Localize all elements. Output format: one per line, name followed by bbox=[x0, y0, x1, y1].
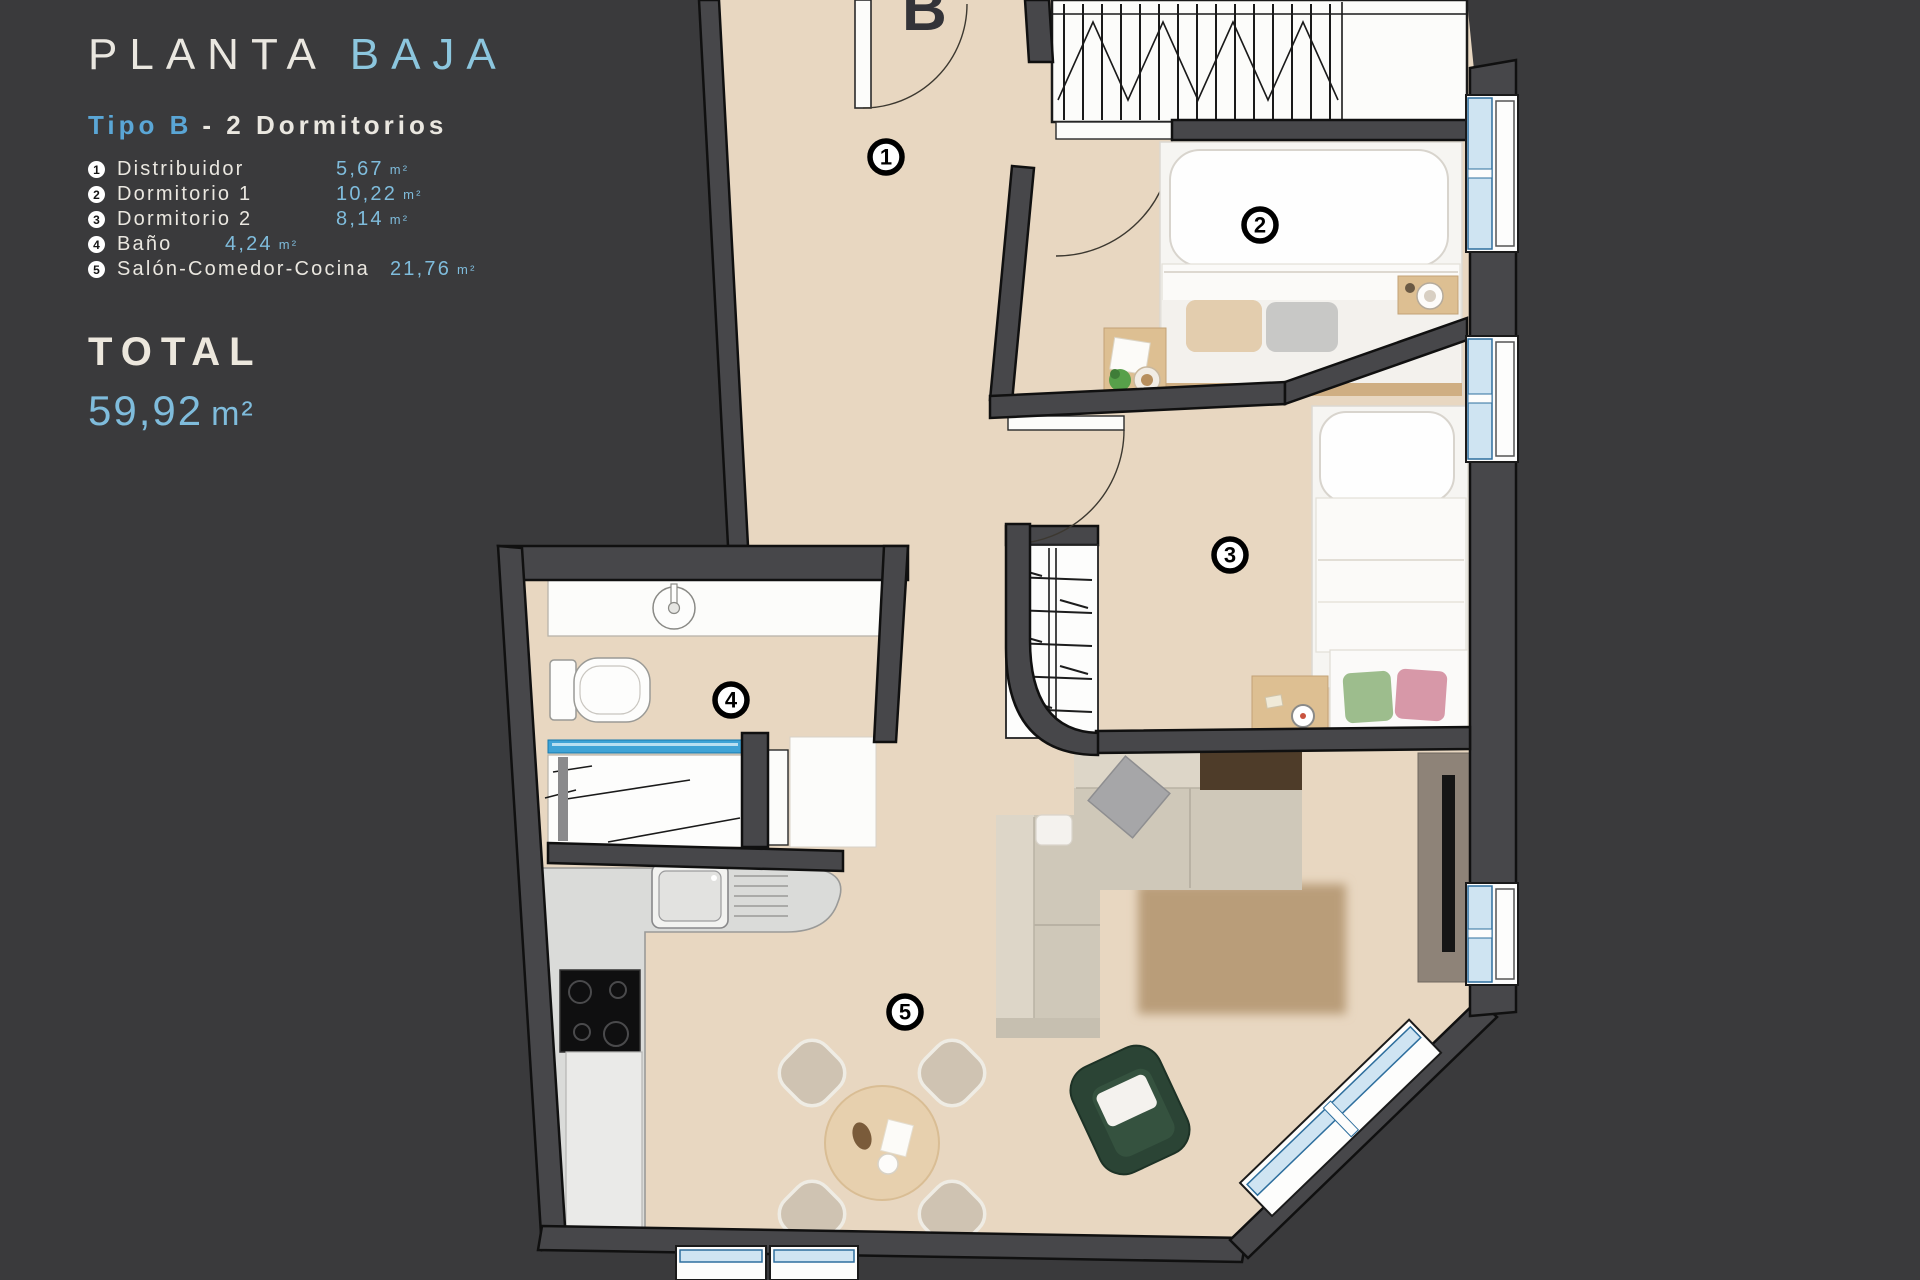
subtitle-rest: - 2 Dormitorios bbox=[202, 110, 447, 140]
plan-room-badge: 2 bbox=[1244, 209, 1276, 241]
cooktop-icon bbox=[560, 970, 640, 1052]
room-area-value: 21,76 bbox=[390, 258, 451, 281]
room-number-badge: 3 bbox=[88, 211, 105, 228]
table-cup-icon bbox=[878, 1154, 898, 1174]
room-legend-row: 5Salón-Comedor-Cocina21,76m² bbox=[88, 257, 648, 282]
wall-dormitorio-1-top bbox=[1172, 120, 1467, 140]
room-number-badge: 1 bbox=[88, 161, 105, 178]
wall-stairs-left bbox=[1025, 0, 1053, 62]
title-accent: BAJA bbox=[350, 30, 508, 79]
tv-unit bbox=[1418, 753, 1470, 982]
room-name: Dormitorio 1 bbox=[117, 183, 336, 206]
plan-room-badge: 4 bbox=[715, 684, 747, 716]
wall-dormitorio-2-bottom bbox=[1096, 727, 1470, 753]
room-number-badge: 2 bbox=[88, 186, 105, 203]
unit-label: B bbox=[902, 0, 947, 44]
room-area-value: 10,22 bbox=[336, 183, 397, 206]
total-area-unit: m² bbox=[211, 395, 255, 433]
room-area-value: 4,24 bbox=[225, 233, 273, 256]
stairs bbox=[1052, 0, 1467, 122]
room-name: Baño bbox=[117, 233, 225, 256]
room-area-value: 5,67 bbox=[336, 158, 384, 181]
shower-bar-icon bbox=[558, 757, 568, 841]
room-name: Dormitorio 2 bbox=[117, 208, 336, 231]
floor-plan-page: B bbox=[0, 0, 1920, 1280]
cushion-beige-icon bbox=[1186, 300, 1262, 352]
room-legend-row: 3Dormitorio 28,14m² bbox=[88, 207, 648, 232]
svg-text:3: 3 bbox=[1224, 543, 1236, 568]
tv-icon bbox=[1442, 775, 1455, 952]
svg-text:4: 4 bbox=[725, 688, 738, 713]
plan-room-badge: 1 bbox=[870, 141, 902, 173]
room-legend: 1Distribuidor5,67m²2Dormitorio 110,22m²3… bbox=[88, 157, 648, 282]
wall-bathroom-top bbox=[498, 546, 908, 580]
cushion-gray-icon bbox=[1266, 302, 1338, 352]
room-legend-row: 4Baño4,24m² bbox=[88, 232, 648, 257]
sofa-blanket-brown bbox=[1200, 750, 1302, 790]
window-dormitorio-1 bbox=[1466, 95, 1518, 252]
toilet-icon bbox=[550, 658, 650, 722]
room-name: Distribuidor bbox=[117, 158, 336, 181]
subtitle-type: Tipo B bbox=[88, 110, 192, 140]
room-area-unit: m² bbox=[390, 162, 410, 177]
bathroom-sink-counter bbox=[548, 580, 884, 636]
room-area-unit: m² bbox=[403, 187, 423, 202]
room-number-badge: 4 bbox=[88, 236, 105, 253]
door-leaf-dormitorio-1 bbox=[1056, 122, 1172, 139]
room-area-unit: m² bbox=[279, 237, 299, 252]
room-legend-row: 2Dormitorio 110,22m² bbox=[88, 182, 648, 207]
cushion-pink-icon bbox=[1394, 668, 1447, 721]
bathroom-door-swing-area bbox=[790, 737, 876, 847]
total-label: TOTAL bbox=[88, 330, 648, 375]
room-number-badge: 5 bbox=[88, 261, 105, 278]
room-area-unit: m² bbox=[390, 212, 410, 227]
room-legend-row: 1Distribuidor5,67m² bbox=[88, 157, 648, 182]
nightstand-icon bbox=[1252, 676, 1328, 734]
nightstand-left-icon bbox=[1104, 328, 1166, 394]
window-salon-bottom bbox=[676, 1246, 858, 1280]
nightstand-right-icon bbox=[1398, 276, 1458, 314]
window-dormitorio-2 bbox=[1466, 336, 1518, 462]
plan-room-badge: 3 bbox=[1214, 539, 1246, 571]
pillow-icon bbox=[1170, 150, 1448, 266]
room-area-unit: m² bbox=[457, 262, 477, 277]
title-main: PLANTA bbox=[88, 30, 325, 79]
room-area-value: 8,14 bbox=[336, 208, 384, 231]
shower-glass bbox=[548, 740, 742, 753]
cushion-green-icon bbox=[1342, 670, 1393, 723]
door-leaf-dormitorio-2 bbox=[1008, 416, 1124, 430]
sofa-pillow-white-icon bbox=[1036, 815, 1072, 845]
wall-shower-post bbox=[742, 733, 768, 847]
bathroom-door bbox=[768, 750, 788, 845]
info-panel: PLANTA BAJA Tipo B- 2 Dormitorios 1Distr… bbox=[88, 30, 648, 435]
plan-subtitle: Tipo B- 2 Dormitorios bbox=[88, 110, 648, 141]
room-name: Salón-Comedor-Cocina bbox=[117, 258, 370, 281]
page-title: PLANTA BAJA bbox=[88, 30, 648, 80]
plan-room-badge: 5 bbox=[889, 996, 921, 1028]
svg-text:1: 1 bbox=[880, 145, 892, 170]
rug bbox=[1138, 884, 1346, 1014]
shower bbox=[545, 740, 742, 847]
svg-text:5: 5 bbox=[899, 1000, 911, 1025]
kitchen-counter-lower bbox=[566, 1052, 642, 1240]
total-value: 59,92m² bbox=[88, 387, 648, 435]
total-area-number: 59,92 bbox=[88, 387, 203, 434]
window-salon-right bbox=[1466, 883, 1518, 985]
pillow-icon bbox=[1320, 412, 1454, 502]
svg-text:2: 2 bbox=[1254, 213, 1266, 238]
